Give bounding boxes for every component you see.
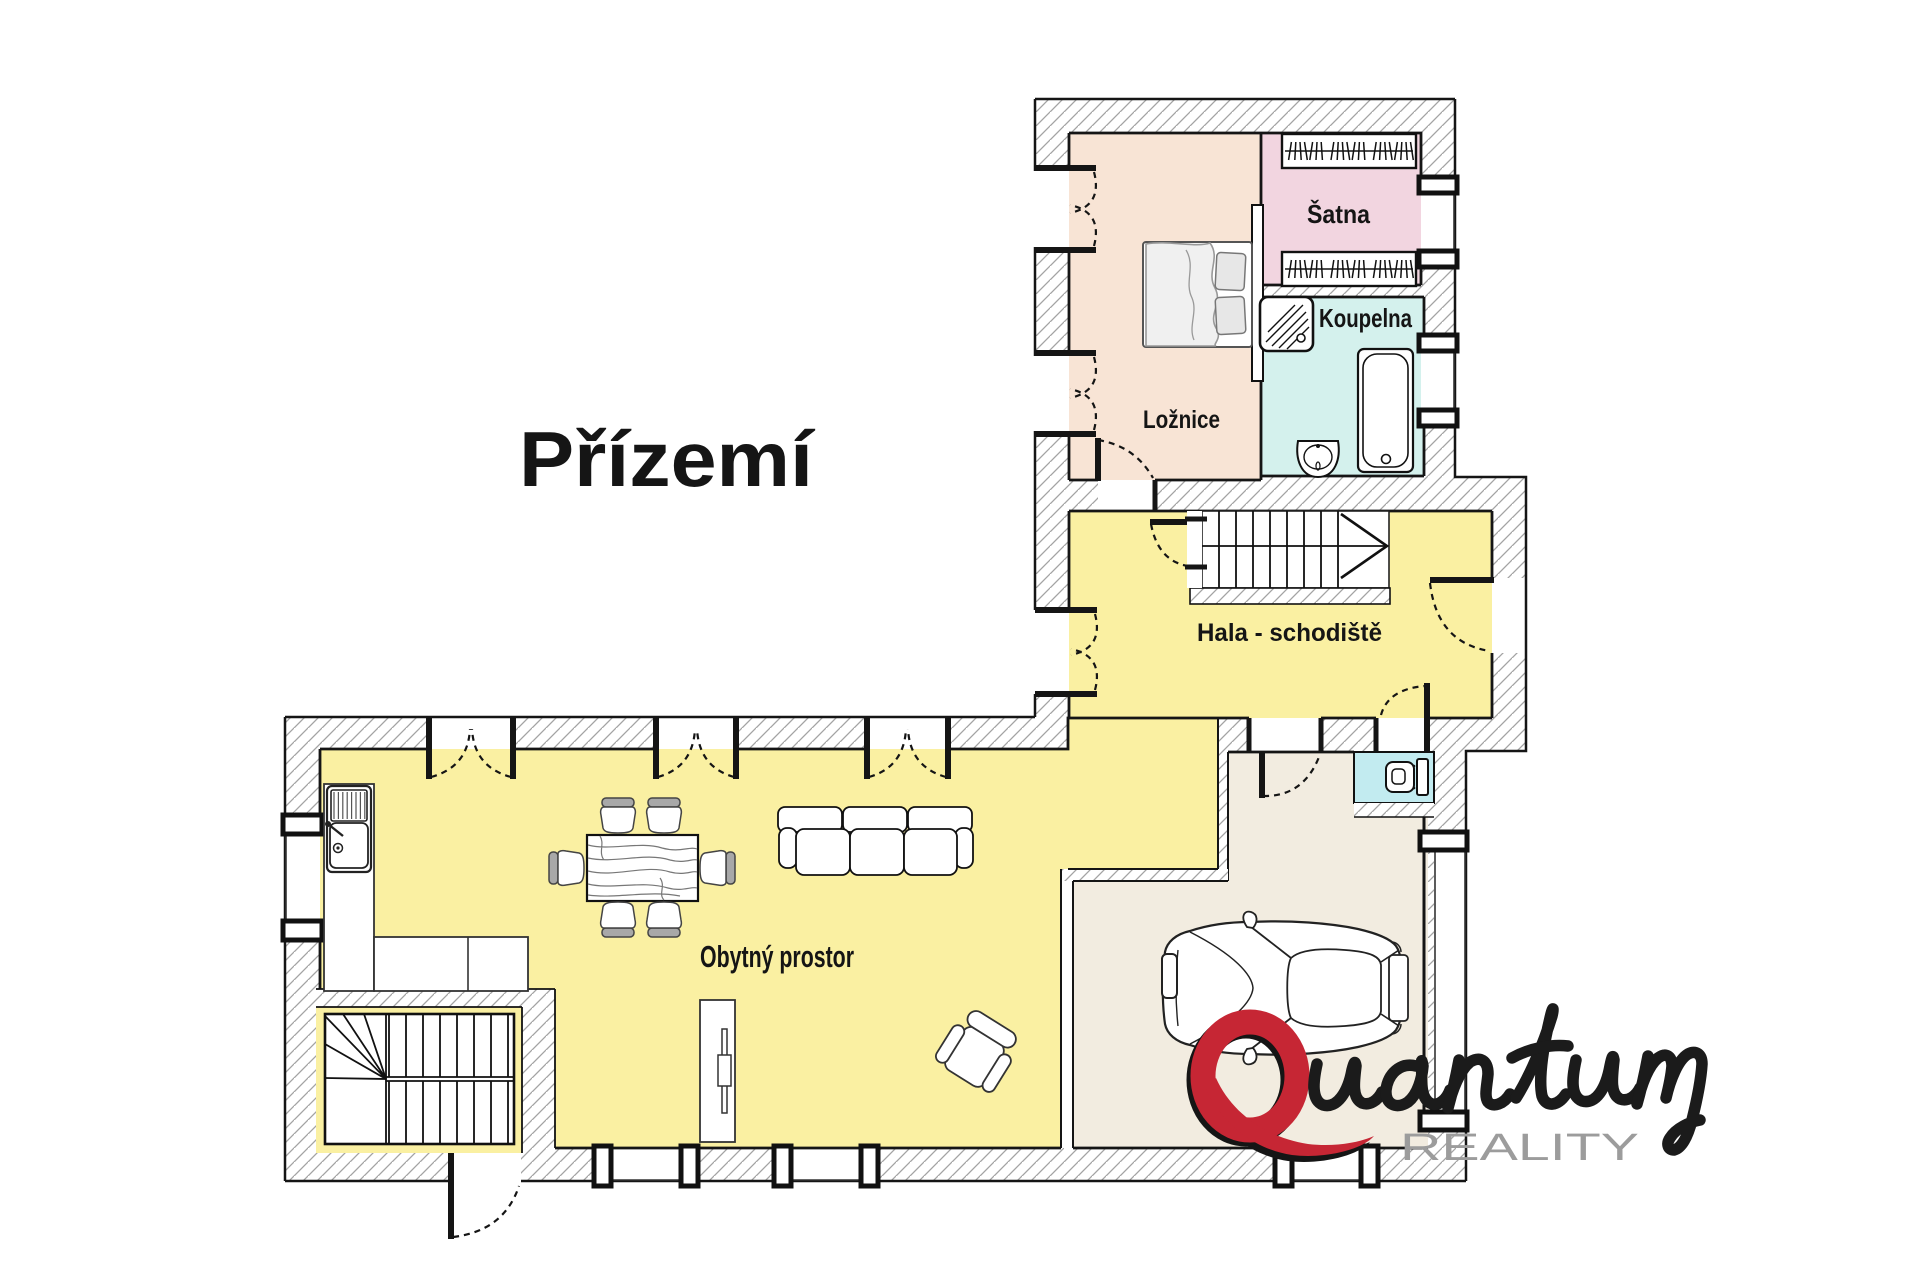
svg-text:Hala - schodiště: Hala - schodiště [1197, 619, 1382, 647]
svg-text:Obytný prostor: Obytný prostor [700, 939, 854, 974]
svg-text:REALITY: REALITY [1400, 1127, 1639, 1169]
svg-text:Přízemí: Přízemí [519, 415, 815, 503]
svg-text:Koupelna: Koupelna [1319, 303, 1412, 333]
svg-text:Šatna: Šatna [1307, 199, 1370, 229]
svg-text:Ložnice: Ložnice [1143, 406, 1220, 434]
